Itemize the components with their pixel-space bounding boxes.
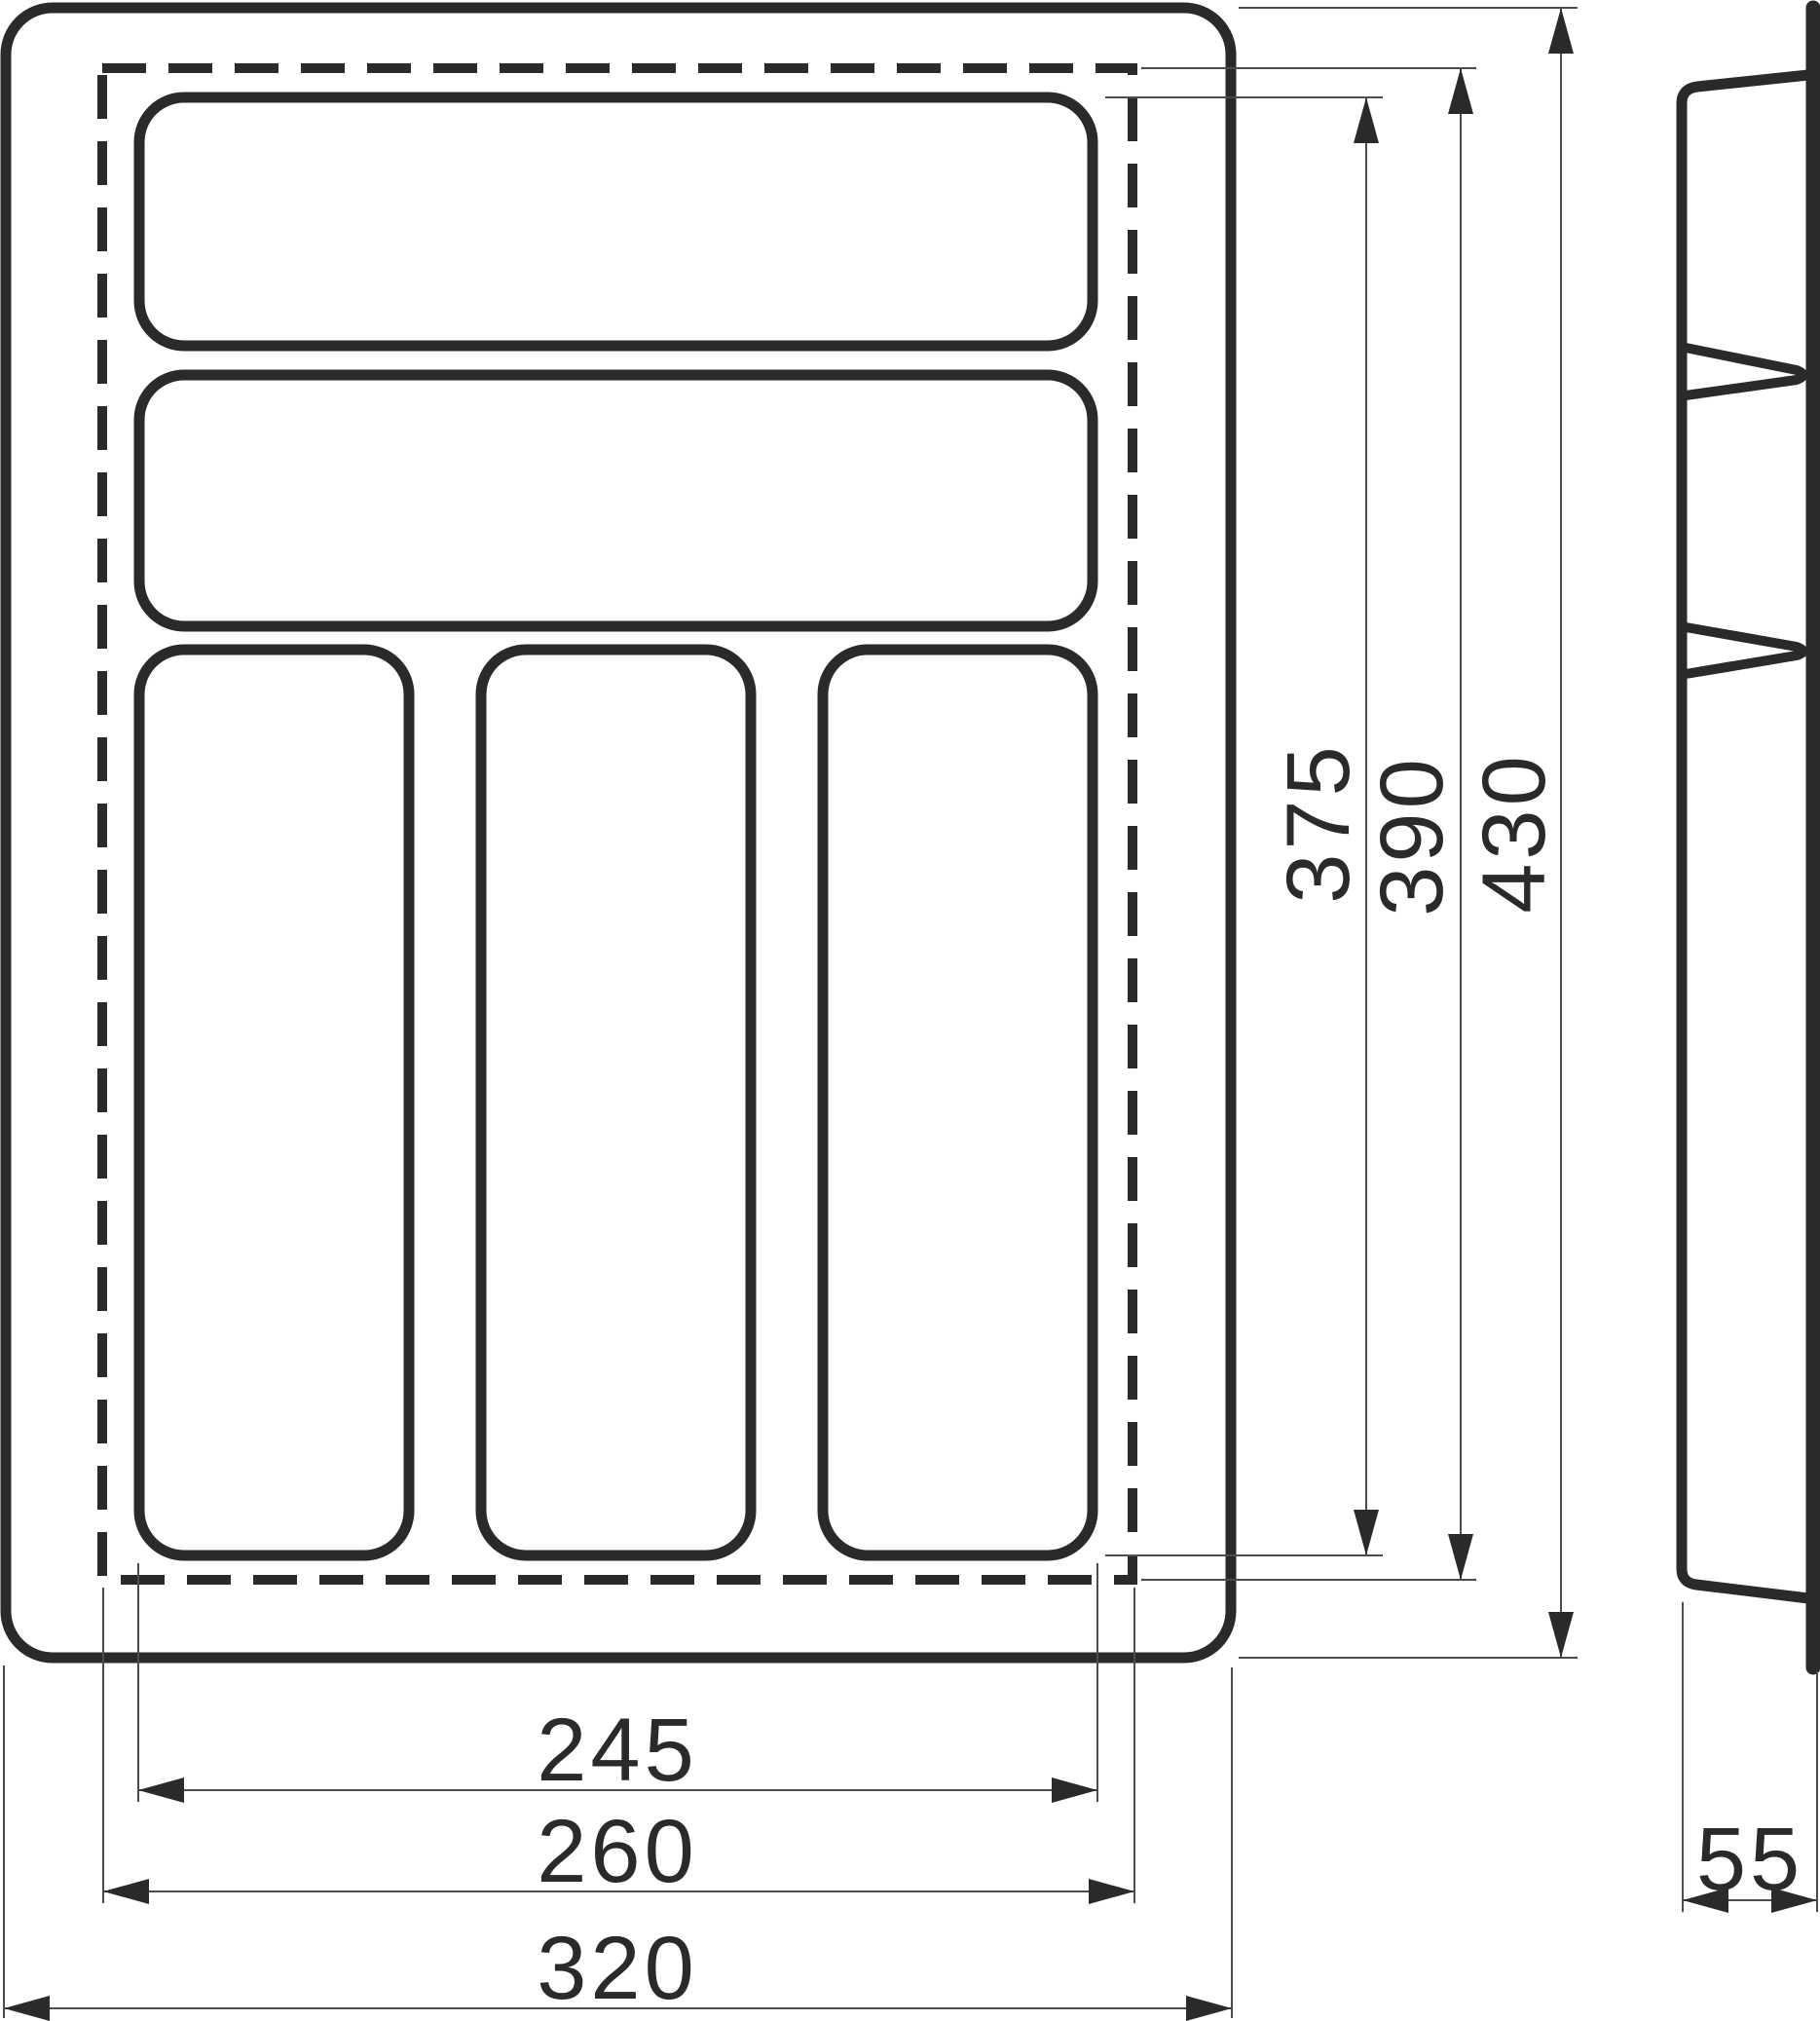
arrowhead-right: [1052, 1778, 1097, 1803]
dimension-label-260: 260: [537, 1802, 698, 1901]
front-view: [6, 8, 1231, 1658]
dimension-label-375: 375: [1269, 742, 1368, 904]
arrowhead-right: [1089, 1879, 1134, 1904]
arrowhead-up: [1354, 97, 1379, 143]
tray-outer-body: [6, 8, 1231, 1658]
arrowhead-right: [1186, 1996, 1232, 2021]
arrowhead-left: [103, 1879, 149, 1904]
arrowhead-up: [1548, 8, 1574, 54]
dimension-label-320: 320: [537, 1919, 698, 2018]
side-divider-notch-1: [1686, 348, 1803, 395]
arrowhead-down: [1448, 1534, 1473, 1580]
arrowhead-up: [1448, 68, 1473, 114]
dimension-label-55: 55: [1696, 1810, 1803, 1909]
arrowhead-left: [138, 1778, 184, 1803]
compartment-vertical-middle: [481, 650, 751, 1555]
arrowhead-down: [1548, 1612, 1574, 1658]
compartment-top-2: [139, 375, 1093, 626]
compartment-vertical-right: [823, 650, 1093, 1555]
dimension-label-245: 245: [537, 1701, 698, 1800]
dimension-label-390: 390: [1362, 755, 1462, 917]
arrowhead-left: [4, 1996, 50, 2021]
dimension-compartment-width: 245: [138, 1563, 1097, 1803]
side-tray-profile: [1682, 75, 1808, 1598]
dimension-side-depth: 55: [1683, 1602, 1817, 1913]
cutlery-tray-technical-drawing: 375 390 430 245: [0, 0, 1820, 2021]
dimension-label-430: 430: [1465, 752, 1564, 914]
arrowhead-down: [1354, 1510, 1379, 1555]
drawing-sheet: 375 390 430 245: [0, 0, 1820, 2021]
side-divider-notch-2: [1686, 627, 1803, 674]
compartment-top-1: [139, 97, 1093, 346]
dimension-compartment-height: 375: [1105, 97, 1383, 1555]
trim-cut-line: [102, 68, 1133, 1580]
side-view: [1682, 8, 1813, 1667]
compartment-vertical-left: [139, 650, 409, 1555]
